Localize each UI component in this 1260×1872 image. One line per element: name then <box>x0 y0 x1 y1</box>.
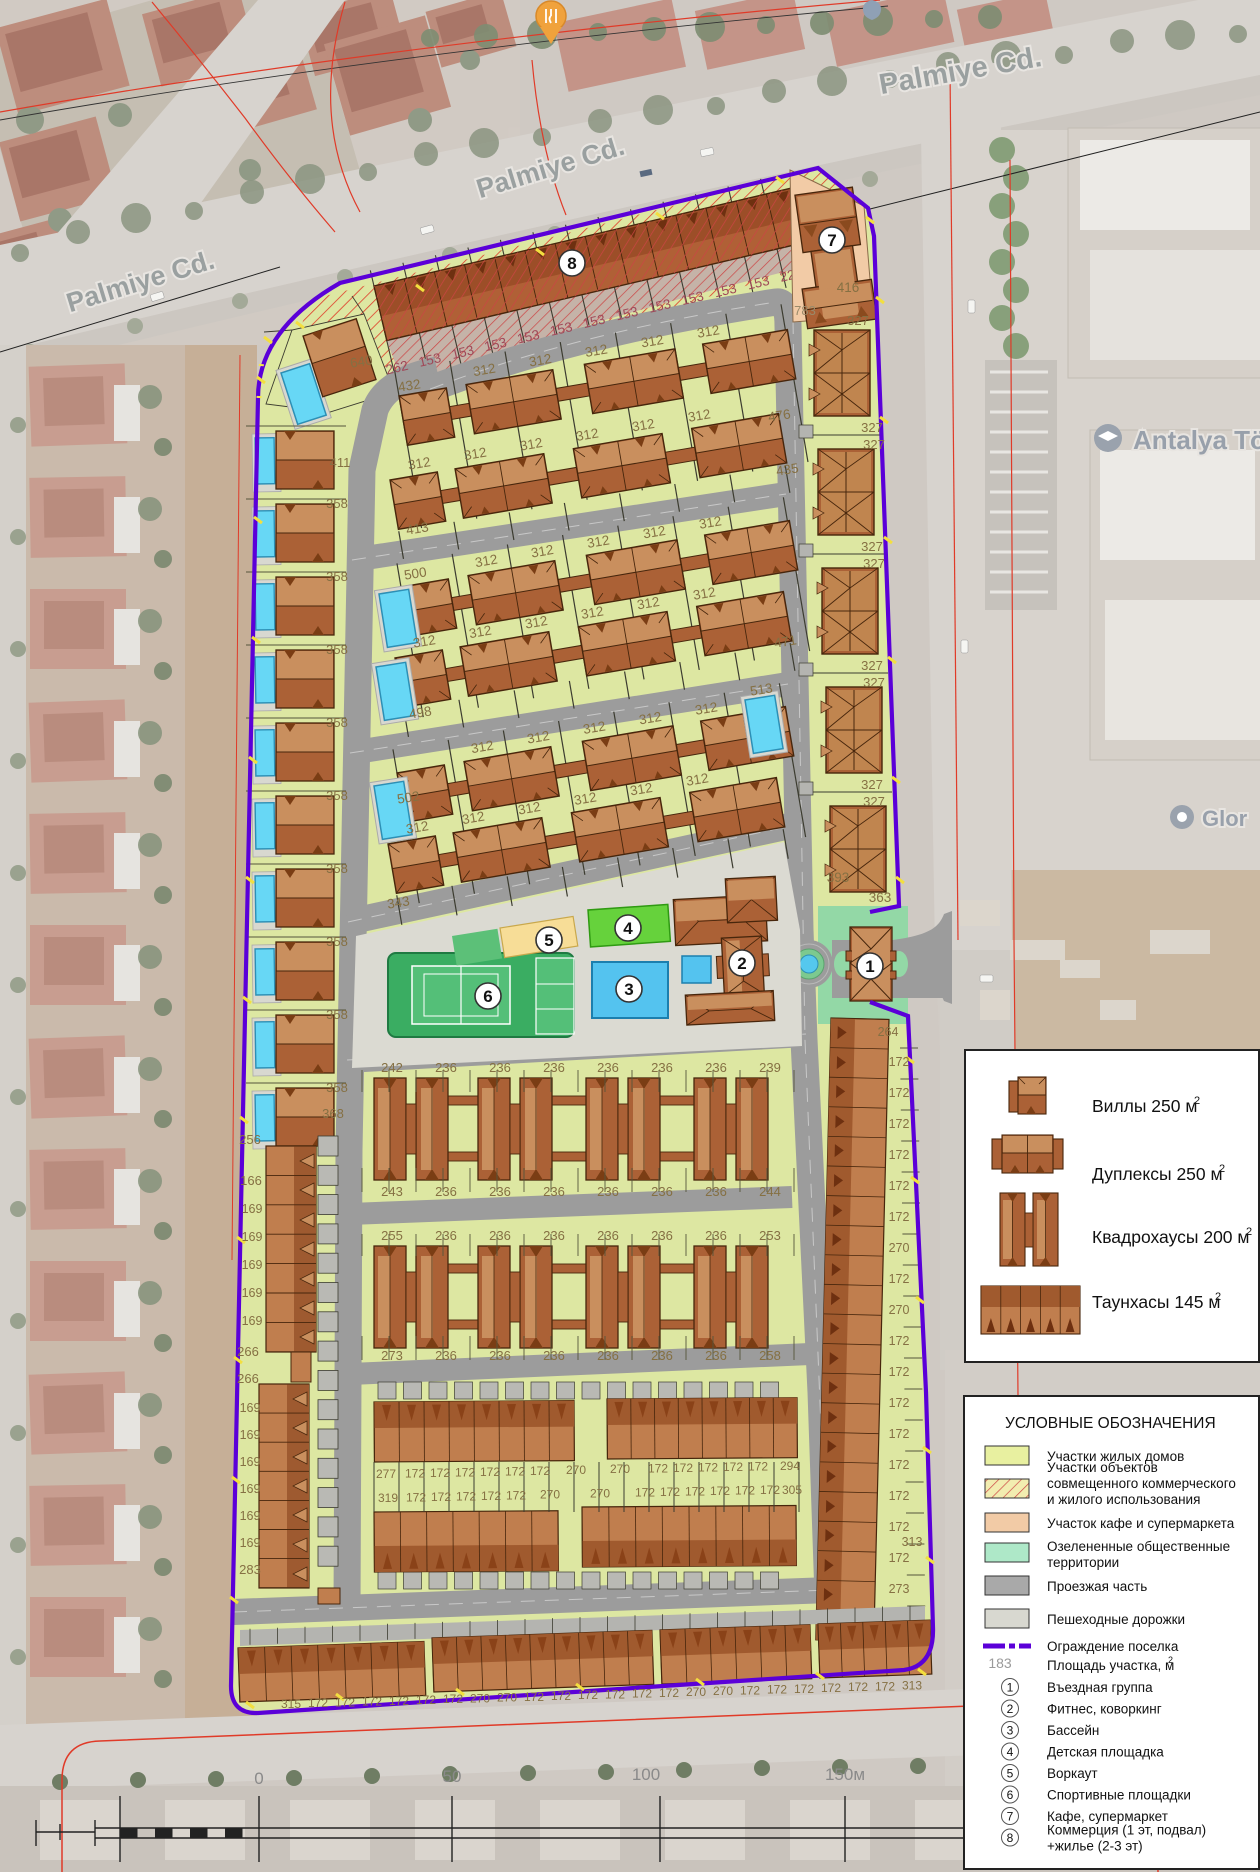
svg-text:294: 294 <box>780 1459 800 1473</box>
svg-text:2: 2 <box>737 954 746 973</box>
svg-text:169: 169 <box>240 1536 261 1550</box>
svg-text:172: 172 <box>821 1681 841 1695</box>
svg-text:172: 172 <box>889 1458 910 1472</box>
svg-text:172: 172 <box>389 1694 409 1708</box>
svg-text:315: 315 <box>281 1697 301 1711</box>
svg-text:172: 172 <box>740 1683 760 1697</box>
svg-text:270: 270 <box>889 1241 910 1255</box>
svg-text:7: 7 <box>1007 1810 1014 1824</box>
svg-text:Бассейн: Бассейн <box>1047 1723 1099 1738</box>
svg-text:172: 172 <box>685 1485 705 1499</box>
svg-text:Дуплексы 250 м: Дуплексы 250 м <box>1092 1164 1223 1184</box>
svg-text:172: 172 <box>416 1693 436 1707</box>
svg-text:166: 166 <box>240 1173 262 1188</box>
svg-text:313: 313 <box>902 1535 923 1549</box>
svg-text:Ограждение поселка: Ограждение поселка <box>1047 1639 1179 1654</box>
svg-text:270: 270 <box>566 1463 586 1477</box>
svg-text:255: 255 <box>381 1228 403 1243</box>
svg-text:Детская площадка: Детская площадка <box>1047 1745 1164 1760</box>
svg-text:172: 172 <box>635 1486 655 1500</box>
svg-text:169: 169 <box>240 1482 261 1496</box>
svg-text:236: 236 <box>597 1184 619 1199</box>
svg-text:358: 358 <box>326 788 348 803</box>
svg-text:236: 236 <box>705 1060 727 1075</box>
svg-text:236: 236 <box>543 1348 565 1363</box>
svg-text:239: 239 <box>759 1060 781 1075</box>
svg-text:327: 327 <box>861 420 883 435</box>
svg-text:Виллы 250 м: Виллы 250 м <box>1092 1096 1197 1116</box>
svg-text:236: 236 <box>597 1060 619 1075</box>
svg-text:358: 358 <box>326 496 348 511</box>
svg-text:территории: территории <box>1047 1555 1119 1570</box>
svg-text:236: 236 <box>543 1184 565 1199</box>
svg-text:236: 236 <box>489 1060 511 1075</box>
svg-text:172: 172 <box>530 1464 550 1478</box>
svg-text:172: 172 <box>735 1484 755 1498</box>
svg-text:Квадрохаусы 200 м: Квадрохаусы 200 м <box>1092 1227 1249 1247</box>
svg-text:172: 172 <box>605 1687 625 1701</box>
svg-text:172: 172 <box>889 1427 910 1441</box>
svg-text:и жилого использования: и жилого использования <box>1047 1492 1200 1507</box>
svg-text:172: 172 <box>673 1461 693 1475</box>
svg-text:Озелененные общественные: Озелененные общественные <box>1047 1539 1230 1554</box>
svg-text:Таунхасы 145 м: Таунхасы 145 м <box>1092 1292 1220 1312</box>
svg-text:172: 172 <box>362 1695 382 1709</box>
svg-text:270: 270 <box>713 1684 733 1698</box>
svg-text:183: 183 <box>988 1655 1012 1671</box>
svg-text:358: 358 <box>326 1007 348 1022</box>
svg-text:172: 172 <box>889 1334 910 1348</box>
svg-text:172: 172 <box>710 1484 730 1498</box>
svg-text:172: 172 <box>875 1679 895 1693</box>
svg-text:172: 172 <box>648 1461 668 1475</box>
svg-text:6: 6 <box>1007 1788 1014 1802</box>
svg-text:169: 169 <box>240 1509 261 1523</box>
svg-text:172: 172 <box>889 1086 910 1100</box>
svg-text:236: 236 <box>543 1228 565 1243</box>
svg-text:236: 236 <box>435 1228 457 1243</box>
svg-text:Площадь участка, м: Площадь участка, м <box>1047 1658 1174 1673</box>
svg-text:270: 270 <box>889 1303 910 1317</box>
svg-text:172: 172 <box>308 1696 328 1710</box>
svg-text:2: 2 <box>1215 1291 1221 1303</box>
svg-text:Проезжая часть: Проезжая часть <box>1047 1579 1147 1594</box>
svg-text:4: 4 <box>1007 1745 1014 1759</box>
svg-text:266: 266 <box>237 1344 259 1359</box>
svg-text:319: 319 <box>378 1491 398 1505</box>
svg-text:172: 172 <box>889 1365 910 1379</box>
svg-text:Участки объектов: Участки объектов <box>1047 1460 1158 1475</box>
svg-text:Glor: Glor <box>1202 806 1248 831</box>
svg-text:5: 5 <box>544 931 553 950</box>
svg-text:+жилье (2-3 эт): +жилье (2-3 эт) <box>1047 1839 1143 1854</box>
svg-text:358: 358 <box>326 642 348 657</box>
svg-text:266: 266 <box>237 1371 259 1386</box>
svg-text:172: 172 <box>889 1179 910 1193</box>
svg-text:169: 169 <box>240 1401 261 1415</box>
svg-text:236: 236 <box>435 1184 457 1199</box>
svg-text:2: 2 <box>1194 1095 1200 1107</box>
svg-text:236: 236 <box>705 1348 727 1363</box>
svg-text:3: 3 <box>624 980 633 999</box>
svg-text:Участок кафе и супермаркета: Участок кафе и супермаркета <box>1047 1516 1235 1531</box>
svg-text:236: 236 <box>435 1060 457 1075</box>
svg-text:169: 169 <box>242 1230 263 1244</box>
svg-text:172: 172 <box>335 1695 355 1709</box>
svg-text:368: 368 <box>322 1106 344 1121</box>
svg-text:172: 172 <box>505 1464 525 1478</box>
svg-text:172: 172 <box>430 1466 450 1480</box>
svg-text:236: 236 <box>651 1060 673 1075</box>
svg-text:172: 172 <box>456 1489 476 1503</box>
svg-text:172: 172 <box>748 1459 768 1473</box>
svg-text:313: 313 <box>902 1679 922 1693</box>
svg-text:416: 416 <box>837 280 860 295</box>
svg-text:327: 327 <box>863 794 885 809</box>
svg-text:411: 411 <box>330 455 351 470</box>
svg-text:172: 172 <box>848 1680 868 1694</box>
svg-text:Спортивные площадки: Спортивные площадки <box>1047 1788 1191 1803</box>
svg-text:169: 169 <box>240 1428 261 1442</box>
svg-text:172: 172 <box>506 1488 526 1502</box>
svg-text:270: 270 <box>540 1488 560 1502</box>
svg-text:358: 358 <box>326 861 348 876</box>
svg-text:236: 236 <box>543 1060 565 1075</box>
svg-text:50: 50 <box>443 1767 462 1786</box>
svg-text:УСЛОВНЫЕ ОБОЗНАЧЕНИЯ: УСЛОВНЫЕ ОБОЗНАЧЕНИЯ <box>1005 1415 1216 1432</box>
svg-text:172: 172 <box>551 1689 571 1703</box>
svg-text:305: 305 <box>782 1483 802 1497</box>
svg-text:0: 0 <box>254 1769 263 1788</box>
svg-text:172: 172 <box>660 1485 680 1499</box>
svg-text:172: 172 <box>443 1692 463 1706</box>
svg-text:172: 172 <box>889 1117 910 1131</box>
svg-text:2: 2 <box>1168 1655 1173 1665</box>
svg-text:236: 236 <box>489 1184 511 1199</box>
svg-text:327: 327 <box>861 539 883 554</box>
svg-text:172: 172 <box>480 1465 500 1479</box>
svg-text:172: 172 <box>481 1489 501 1503</box>
svg-text:совмещенного коммерческого: совмещенного коммерческого <box>1047 1476 1236 1491</box>
svg-text:1: 1 <box>1007 1681 1014 1695</box>
svg-text:270: 270 <box>497 1691 517 1705</box>
svg-text:327: 327 <box>861 777 883 792</box>
svg-text:253: 253 <box>759 1228 781 1243</box>
svg-text:172: 172 <box>524 1690 544 1704</box>
svg-text:172: 172 <box>405 1466 425 1480</box>
svg-text:258: 258 <box>759 1348 781 1363</box>
svg-text:236: 236 <box>705 1184 727 1199</box>
svg-text:172: 172 <box>406 1490 426 1504</box>
svg-text:100: 100 <box>632 1765 660 1784</box>
svg-text:783: 783 <box>794 303 816 318</box>
svg-text:2: 2 <box>1246 1226 1252 1238</box>
svg-text:363: 363 <box>869 890 892 905</box>
svg-text:172: 172 <box>698 1460 718 1474</box>
svg-text:4: 4 <box>623 919 633 938</box>
svg-text:393: 393 <box>827 870 850 885</box>
svg-text:172: 172 <box>794 1682 814 1696</box>
svg-text:358: 358 <box>326 715 348 730</box>
svg-text:172: 172 <box>632 1687 652 1701</box>
svg-text:236: 236 <box>651 1184 673 1199</box>
svg-text:327: 327 <box>863 437 885 452</box>
svg-text:172: 172 <box>455 1465 475 1479</box>
svg-text:169: 169 <box>242 1314 263 1328</box>
svg-text:264: 264 <box>878 1025 899 1039</box>
svg-text:270: 270 <box>590 1487 610 1501</box>
svg-text:327: 327 <box>861 658 883 673</box>
svg-text:236: 236 <box>597 1348 619 1363</box>
svg-text:244: 244 <box>759 1184 781 1199</box>
svg-text:327: 327 <box>863 675 885 690</box>
svg-text:Antalya Tö: Antalya Tö <box>1133 425 1260 455</box>
svg-text:270: 270 <box>686 1685 706 1699</box>
svg-text:6: 6 <box>483 987 492 1006</box>
svg-text:256: 256 <box>239 1132 261 1147</box>
svg-text:172: 172 <box>431 1490 451 1504</box>
svg-text:2: 2 <box>1007 1702 1014 1716</box>
svg-text:327: 327 <box>863 556 885 571</box>
svg-text:8: 8 <box>1007 1831 1014 1845</box>
svg-text:172: 172 <box>889 1148 910 1162</box>
svg-text:327: 327 <box>847 313 869 328</box>
svg-text:236: 236 <box>435 1348 457 1363</box>
svg-text:236: 236 <box>489 1348 511 1363</box>
svg-text:Пешеходные дорожки: Пешеходные дорожки <box>1047 1612 1185 1627</box>
svg-text:283: 283 <box>239 1562 261 1577</box>
svg-text:5: 5 <box>1007 1767 1014 1781</box>
svg-text:273: 273 <box>381 1348 403 1363</box>
svg-text:358: 358 <box>326 934 348 949</box>
svg-text:Коммерция (1 эт, подвал): Коммерция (1 эт, подвал) <box>1047 1823 1206 1838</box>
svg-text:172: 172 <box>889 1520 910 1534</box>
svg-text:236: 236 <box>651 1228 673 1243</box>
svg-text:172: 172 <box>889 1210 910 1224</box>
svg-text:8: 8 <box>567 254 576 273</box>
svg-text:172: 172 <box>889 1551 910 1565</box>
svg-text:236: 236 <box>705 1228 727 1243</box>
svg-text:Въездная группа: Въездная группа <box>1047 1680 1153 1695</box>
svg-text:169: 169 <box>240 1455 261 1469</box>
svg-text:270: 270 <box>610 1462 630 1476</box>
svg-text:169: 169 <box>242 1258 263 1272</box>
svg-text:Фитнес, коворкинг: Фитнес, коворкинг <box>1047 1702 1162 1717</box>
svg-text:242: 242 <box>381 1060 403 1075</box>
svg-text:270: 270 <box>470 1691 490 1705</box>
svg-text:243: 243 <box>381 1184 403 1199</box>
svg-text:3: 3 <box>1007 1724 1014 1738</box>
svg-text:1: 1 <box>865 957 874 976</box>
svg-text:172: 172 <box>578 1688 598 1702</box>
svg-text:172: 172 <box>767 1683 787 1697</box>
svg-text:358: 358 <box>326 1080 348 1095</box>
svg-text:150м: 150м <box>825 1765 865 1784</box>
svg-text:169: 169 <box>242 1202 263 1216</box>
svg-text:277: 277 <box>376 1467 396 1481</box>
svg-text:Воркаут: Воркаут <box>1047 1766 1098 1781</box>
svg-text:358: 358 <box>326 569 348 584</box>
svg-text:236: 236 <box>597 1228 619 1243</box>
svg-text:172: 172 <box>889 1396 910 1410</box>
svg-text:172: 172 <box>723 1460 743 1474</box>
svg-text:7: 7 <box>827 231 836 250</box>
svg-text:273: 273 <box>889 1582 910 1596</box>
svg-text:172: 172 <box>889 1489 910 1503</box>
svg-text:236: 236 <box>489 1228 511 1243</box>
svg-text:172: 172 <box>659 1686 679 1700</box>
svg-text:2: 2 <box>1219 1163 1225 1175</box>
svg-text:172: 172 <box>889 1055 910 1069</box>
svg-text:172: 172 <box>760 1483 780 1497</box>
svg-text:169: 169 <box>242 1286 263 1300</box>
svg-text:172: 172 <box>889 1272 910 1286</box>
svg-text:236: 236 <box>651 1348 673 1363</box>
